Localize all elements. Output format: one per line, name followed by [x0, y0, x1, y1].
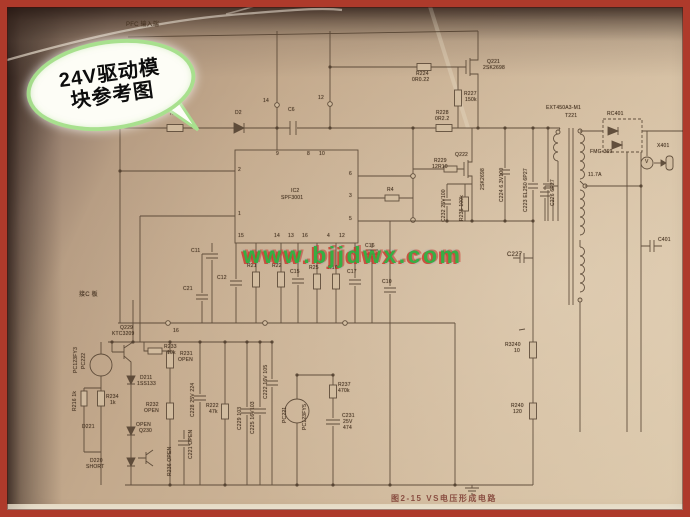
component-label: 16	[302, 234, 308, 239]
component-label: 14	[274, 234, 280, 239]
component-label: EXT450A3-M1	[546, 106, 581, 111]
component-label: 16	[173, 329, 179, 334]
component-label: 6	[349, 172, 352, 177]
component-label: C223 EL250 6P27	[524, 168, 529, 212]
component-label: C401	[658, 238, 671, 243]
component-label: 12	[339, 234, 345, 239]
component-label: SHORT	[86, 465, 104, 470]
component-label: C12	[217, 276, 227, 281]
component-label: 接C 板	[79, 292, 98, 298]
component-label: C17	[347, 270, 357, 275]
component-label: 13	[288, 234, 294, 239]
component-label: PFC 输入端	[126, 22, 159, 28]
component-label: 0R0.22	[412, 78, 429, 83]
component-label: C226 6P27	[551, 179, 556, 206]
component-label: V	[645, 160, 649, 165]
component-label: KTC3209	[112, 332, 135, 337]
component-label: 150k	[465, 98, 477, 103]
component-label: 474	[343, 426, 352, 431]
figure-caption: 图2-15 VS电压形成电路	[391, 493, 497, 504]
component-label: FMG-369	[590, 150, 613, 155]
component-label: C222 16V 105	[264, 365, 269, 399]
component-label: C227	[507, 252, 522, 258]
component-label: PC123FY5	[303, 404, 308, 430]
component-label: R235 100k	[460, 195, 465, 221]
component-label: PC123FY3	[74, 347, 79, 373]
component-label: 10k	[167, 351, 176, 356]
component-label: 8	[307, 152, 310, 157]
component-label: 10	[319, 152, 325, 157]
component-label: 0R2.2	[435, 117, 449, 122]
component-label: 14	[263, 99, 269, 104]
component-label: 11.7A	[588, 173, 602, 178]
component-label: 15	[238, 234, 244, 239]
component-label: C224 6.3V100	[500, 168, 505, 202]
component-label: 470k	[338, 389, 350, 394]
component-label: 3	[349, 194, 352, 199]
component-label: IC2	[291, 189, 299, 194]
component-label: C221 OPEN	[189, 430, 194, 459]
page-bottom-edge	[7, 504, 683, 510]
component-label: Q230	[139, 429, 152, 434]
component-label: C6	[288, 108, 295, 113]
component-label: D221	[82, 425, 95, 430]
component-label: 2SK2698	[481, 168, 486, 190]
component-label: C229 103	[238, 407, 243, 430]
watermark-text: www.bjjdwx.com	[243, 242, 462, 269]
component-label: C225 16V103	[251, 401, 256, 434]
component-label: C21	[183, 287, 193, 292]
component-label: 2SK2698	[483, 66, 505, 71]
component-label: 47k	[209, 410, 218, 415]
component-label: 1k	[110, 401, 116, 406]
component-label: PC222	[82, 353, 87, 369]
component-label: 120	[513, 410, 522, 415]
component-label: 9	[276, 152, 279, 157]
component-label: Q222	[455, 153, 468, 158]
component-label: 1SS133	[137, 382, 156, 387]
component-label: C228 25V 224	[191, 383, 196, 417]
component-label: R4	[387, 188, 394, 193]
component-label: R236 OPEN	[168, 447, 173, 476]
component-label: 12R10	[432, 165, 448, 170]
component-label: C11	[191, 249, 200, 254]
component-label: PC221	[283, 407, 288, 423]
component-label: T221	[565, 114, 577, 119]
component-label: D2	[235, 111, 242, 116]
component-label: 10	[514, 349, 520, 354]
component-label: X401	[657, 144, 669, 149]
component-label: SPF3001	[281, 196, 303, 201]
component-label: R216 1k	[73, 391, 78, 411]
component-label: C10	[382, 280, 392, 285]
component-label: 1	[238, 212, 241, 217]
component-label: 12	[318, 96, 324, 101]
photo-of-schematic: PFC 输入端PKG1R1D2C61412R2240R0.22Q2212SK26…	[0, 0, 690, 517]
component-label: 2	[238, 168, 241, 173]
component-label: C232 25V100	[442, 189, 447, 222]
component-label: 5	[349, 217, 352, 222]
component-label: RC401	[607, 112, 624, 117]
component-label: OPEN	[178, 358, 193, 363]
component-label: C15	[290, 270, 300, 275]
component-label: 4	[327, 234, 330, 239]
component-label: OPEN	[144, 409, 159, 414]
